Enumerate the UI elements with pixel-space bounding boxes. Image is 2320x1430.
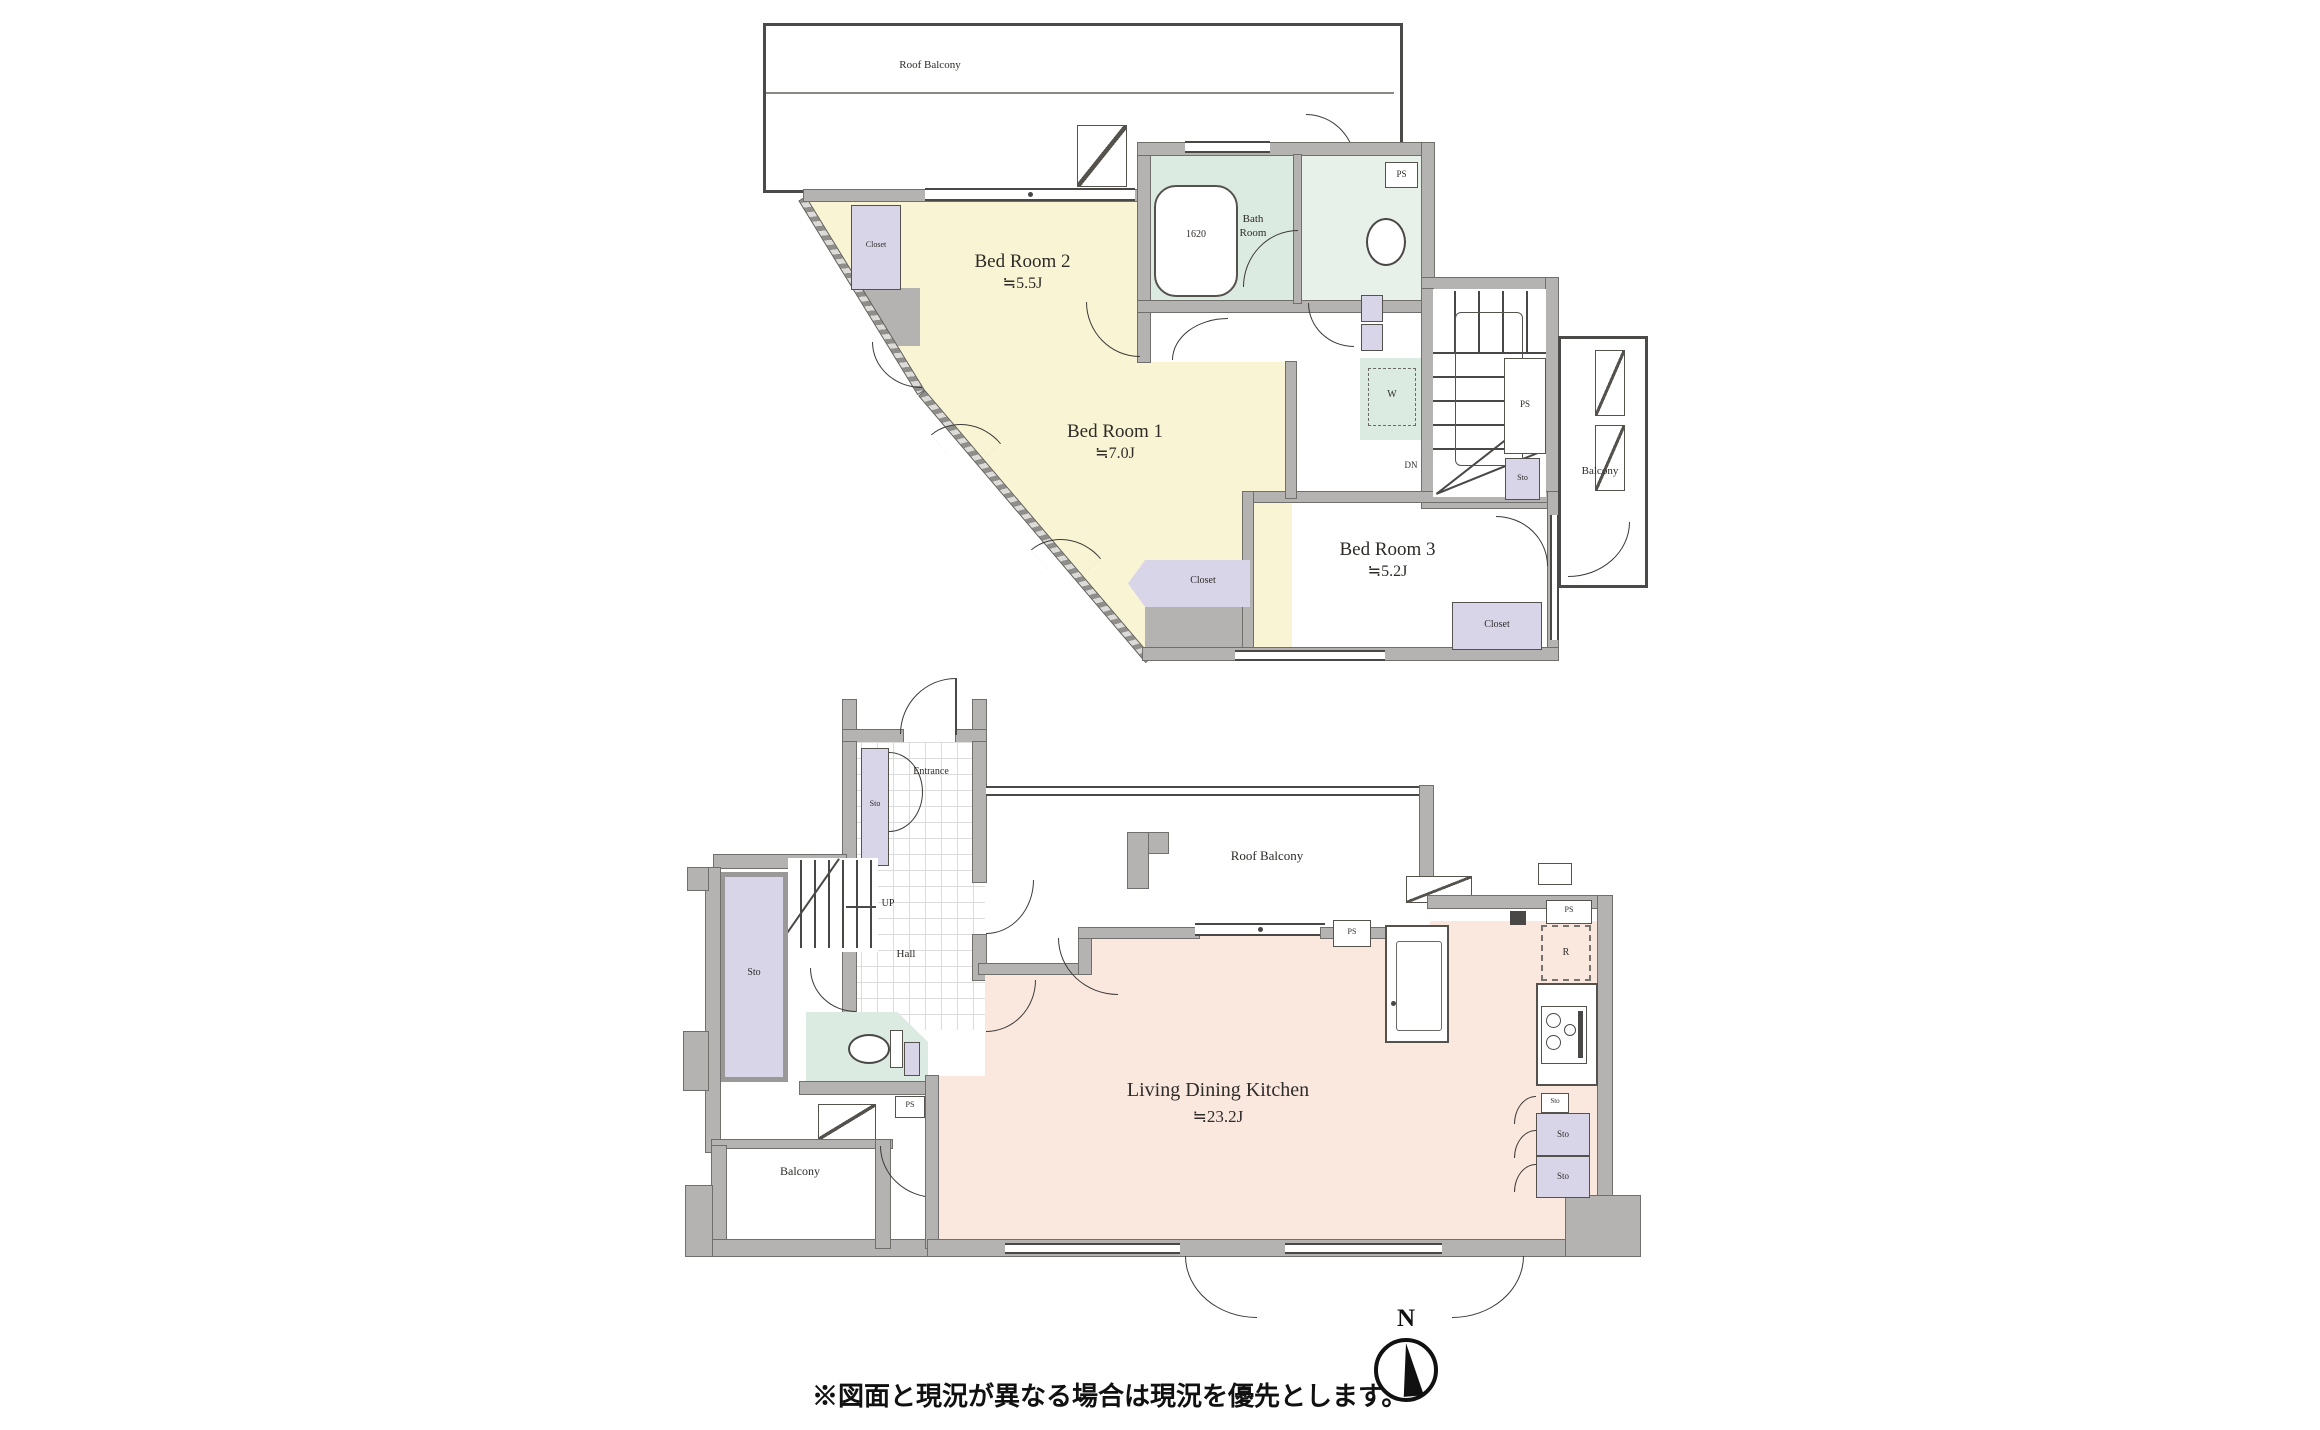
compass-icon bbox=[1374, 1338, 1438, 1402]
compass-north-label: N bbox=[1388, 1303, 1424, 1334]
footer: ※図面と現況が異なる場合は現況を優先とします。 N bbox=[0, 0, 2320, 1430]
compass-needle bbox=[1378, 1342, 1434, 1398]
floor-plan-page: Roof Balcony bbox=[0, 0, 2320, 1430]
disclaimer-note: ※図面と現況が異なる場合は現況を優先とします。 bbox=[812, 1380, 1252, 1413]
